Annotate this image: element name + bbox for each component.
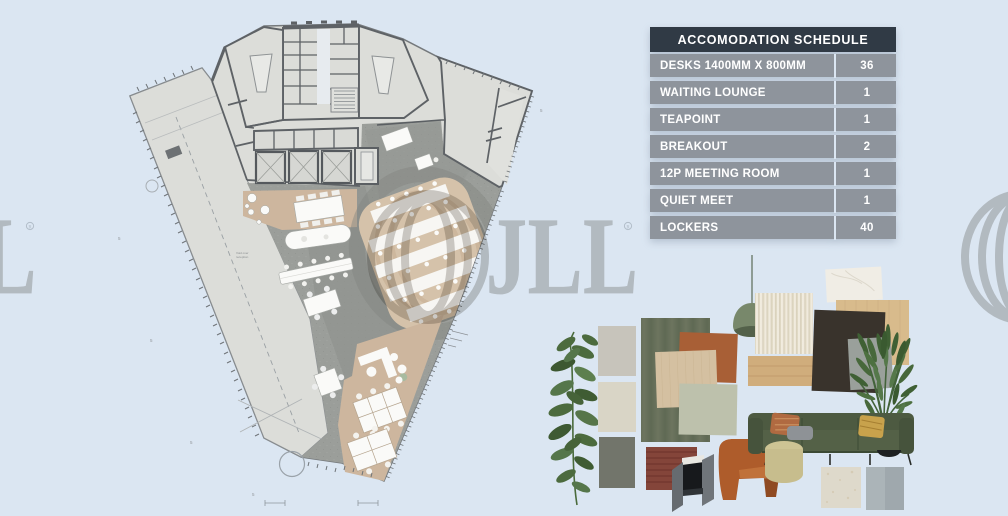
svg-text:5: 5	[190, 440, 193, 445]
svg-text:reception: reception	[236, 255, 249, 259]
svg-text:5: 5	[252, 492, 255, 497]
svg-text:5: 5	[150, 338, 153, 343]
svg-text:JLL: JLL	[0, 195, 37, 316]
svg-text:5: 5	[118, 236, 121, 241]
svg-text:5: 5	[540, 108, 543, 113]
svg-text:JLL: JLL	[486, 195, 639, 316]
